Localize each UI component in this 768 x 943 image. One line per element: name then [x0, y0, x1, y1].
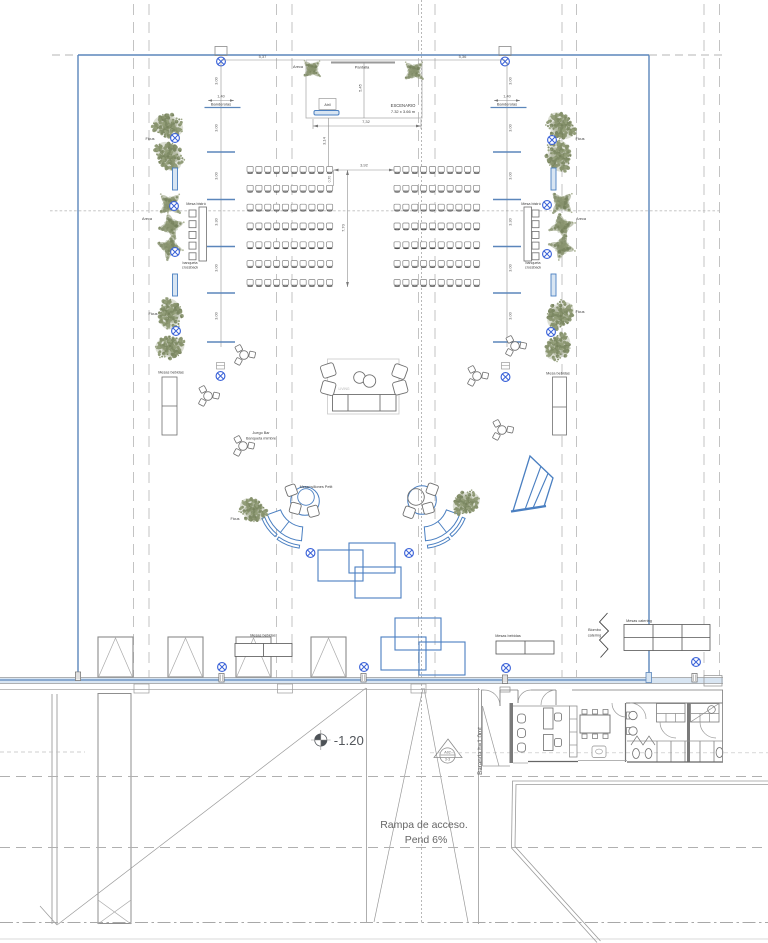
svg-text:5,36: 5,36	[459, 54, 468, 59]
svg-text:Mesa+sillones Petit: Mesa+sillones Petit	[300, 485, 334, 489]
svg-text:Ficus: Ficus	[148, 312, 157, 316]
svg-text:3-3: 3-3	[445, 758, 450, 762]
svg-text:3.00: 3.00	[215, 124, 219, 131]
svg-text:Mesa bistró: Mesa bistró	[186, 202, 206, 206]
svg-text:Areca: Areca	[142, 217, 153, 221]
svg-text:catering: catering	[588, 634, 602, 638]
svg-text:3,92: 3,92	[360, 163, 369, 168]
svg-text:5,37: 5,37	[259, 54, 268, 59]
svg-text:Ficus: Ficus	[145, 137, 154, 141]
svg-text:Atril: Atril	[324, 103, 330, 107]
svg-text:Juego Bar: Juego Bar	[252, 431, 270, 435]
svg-text:3,14: 3,14	[322, 136, 327, 145]
svg-text:Ficus: Ficus	[575, 137, 584, 141]
svg-text:LIVING: LIVING	[338, 387, 349, 391]
svg-text:3.00: 3.00	[509, 172, 513, 179]
svg-text:1,40: 1,40	[503, 95, 510, 99]
svg-text:crossback: crossback	[182, 266, 198, 270]
svg-text:Banqueta mimbre: Banqueta mimbre	[246, 437, 276, 441]
svg-text:3.00: 3.00	[509, 124, 513, 131]
svg-text:3.30: 3.30	[215, 218, 219, 225]
svg-text:3.00: 3.00	[509, 264, 513, 271]
svg-text:1,40: 1,40	[217, 95, 224, 99]
svg-text:Mesa bistró: Mesa bistró	[521, 202, 541, 206]
svg-text:Pend 6%: Pend 6%	[405, 834, 448, 846]
svg-text:Baranda h=1.0mt: Baranda h=1.0mt	[477, 727, 484, 775]
svg-text:Ficus: Ficus	[230, 517, 239, 521]
svg-text:3.00: 3.00	[215, 172, 219, 179]
svg-text:Areca: Areca	[576, 217, 587, 221]
svg-text:Mesas bebidas: Mesas bebidas	[158, 371, 184, 375]
svg-text:3.00: 3.00	[215, 312, 219, 319]
svg-text:0,70: 0,70	[328, 176, 332, 183]
svg-text:7,32: 7,32	[362, 119, 371, 124]
svg-text:Mesas bebidas: Mesas bebidas	[495, 634, 521, 638]
svg-text:Mesas catering: Mesas catering	[626, 619, 652, 623]
svg-text:7.32 x 3.66 m: 7.32 x 3.66 m	[391, 109, 416, 114]
svg-text:banqueta: banqueta	[183, 261, 198, 265]
svg-text:crossback: crossback	[525, 266, 541, 270]
svg-text:Pantalla: Pantalla	[355, 65, 370, 70]
svg-text:Banderolas: Banderolas	[211, 102, 231, 107]
svg-text:Mesa bebidas: Mesa bebidas	[546, 372, 570, 376]
svg-text:3.00: 3.00	[215, 77, 219, 84]
svg-text:ESCENARIO: ESCENARIO	[391, 103, 416, 108]
svg-text:banqueta: banqueta	[526, 261, 541, 265]
svg-text:Rampa de acceso.: Rampa de acceso.	[380, 819, 468, 831]
svg-text:Biombo: Biombo	[588, 628, 601, 632]
svg-text:3.00: 3.00	[509, 312, 513, 319]
svg-text:Areca: Areca	[293, 65, 304, 69]
svg-text:7,70: 7,70	[341, 223, 346, 232]
svg-text:Banderolas: Banderolas	[497, 102, 517, 107]
svg-text:3.00: 3.00	[509, 77, 513, 84]
svg-text:Mesas bebidas: Mesas bebidas	[250, 634, 276, 638]
svg-text:5,45: 5,45	[358, 83, 363, 92]
svg-text:-1.20: -1.20	[334, 733, 364, 748]
svg-text:3.00: 3.00	[215, 264, 219, 271]
svg-text:3.30: 3.30	[509, 218, 513, 225]
svg-text:Ficus: Ficus	[575, 310, 584, 314]
